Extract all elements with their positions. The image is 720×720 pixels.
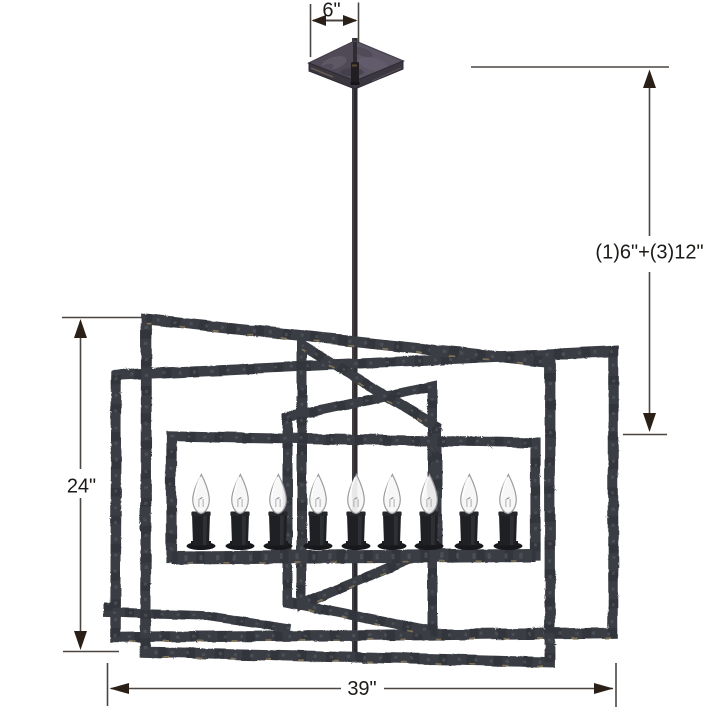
- svg-text:6": 6": [322, 0, 340, 22]
- svg-text:39": 39": [347, 678, 376, 700]
- svg-text:(1)6"+(3)12": (1)6"+(3)12": [595, 242, 703, 264]
- svg-text:24": 24": [67, 476, 96, 498]
